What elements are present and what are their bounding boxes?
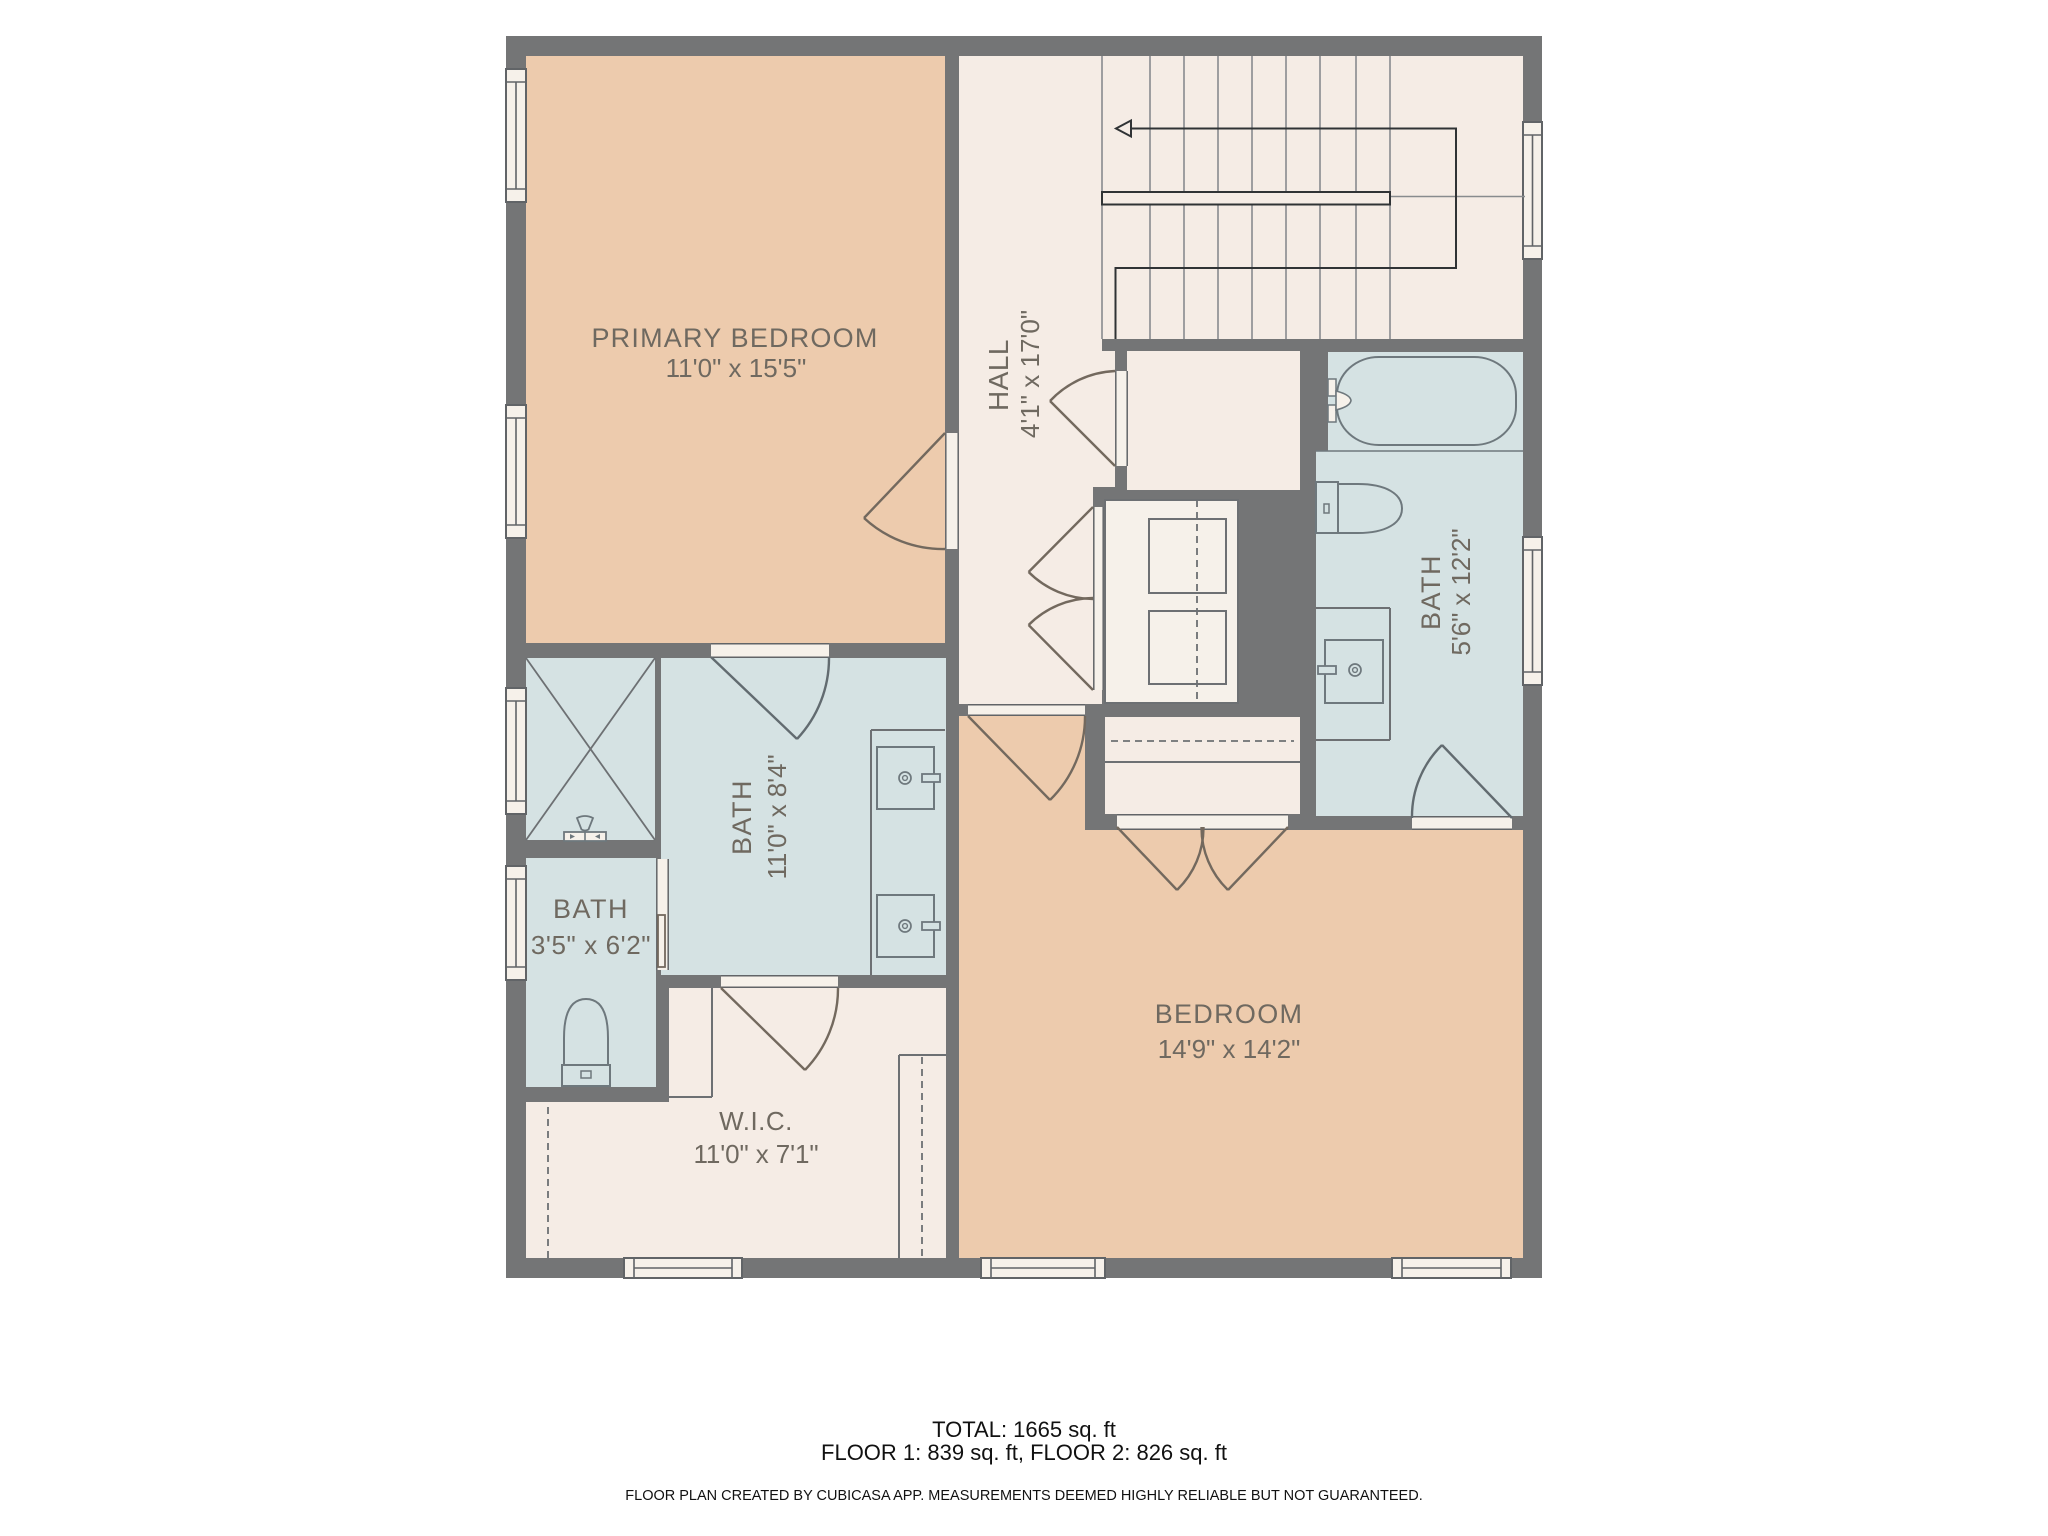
svg-text:FLOOR PLAN CREATED BY CUBICASA: FLOOR PLAN CREATED BY CUBICASA APP. MEAS… (625, 1488, 1422, 1504)
svg-text:4'1" x 17'0": 4'1" x 17'0" (1015, 310, 1045, 438)
svg-text:TOTAL: 1665 sq. ft: TOTAL: 1665 sq. ft (932, 1417, 1116, 1442)
svg-text:BEDROOM: BEDROOM (1155, 999, 1304, 1029)
svg-text:HALL: HALL (983, 339, 1014, 411)
svg-text:14'9" x 14'2": 14'9" x 14'2" (1158, 1034, 1301, 1064)
svg-text:BATH: BATH (727, 779, 757, 855)
svg-text:BATH: BATH (553, 894, 629, 924)
svg-text:3'5" x 6'2": 3'5" x 6'2" (531, 930, 651, 960)
svg-text:11'0" x 8'4": 11'0" x 8'4" (762, 754, 792, 879)
svg-text:11'0" x 7'1": 11'0" x 7'1" (693, 1139, 818, 1169)
svg-text:PRIMARY BEDROOM: PRIMARY BEDROOM (591, 323, 878, 353)
svg-text:11'0" x 15'5": 11'0" x 15'5" (666, 353, 807, 383)
svg-text:5'6" x 12'2": 5'6" x 12'2" (1446, 529, 1476, 656)
svg-text:FLOOR 1: 839 sq. ft, FLOOR 2:: FLOOR 1: 839 sq. ft, FLOOR 2: 826 sq. ft (821, 1440, 1227, 1465)
svg-text:W.I.C.: W.I.C. (719, 1106, 793, 1136)
svg-text:BATH: BATH (1416, 554, 1446, 630)
